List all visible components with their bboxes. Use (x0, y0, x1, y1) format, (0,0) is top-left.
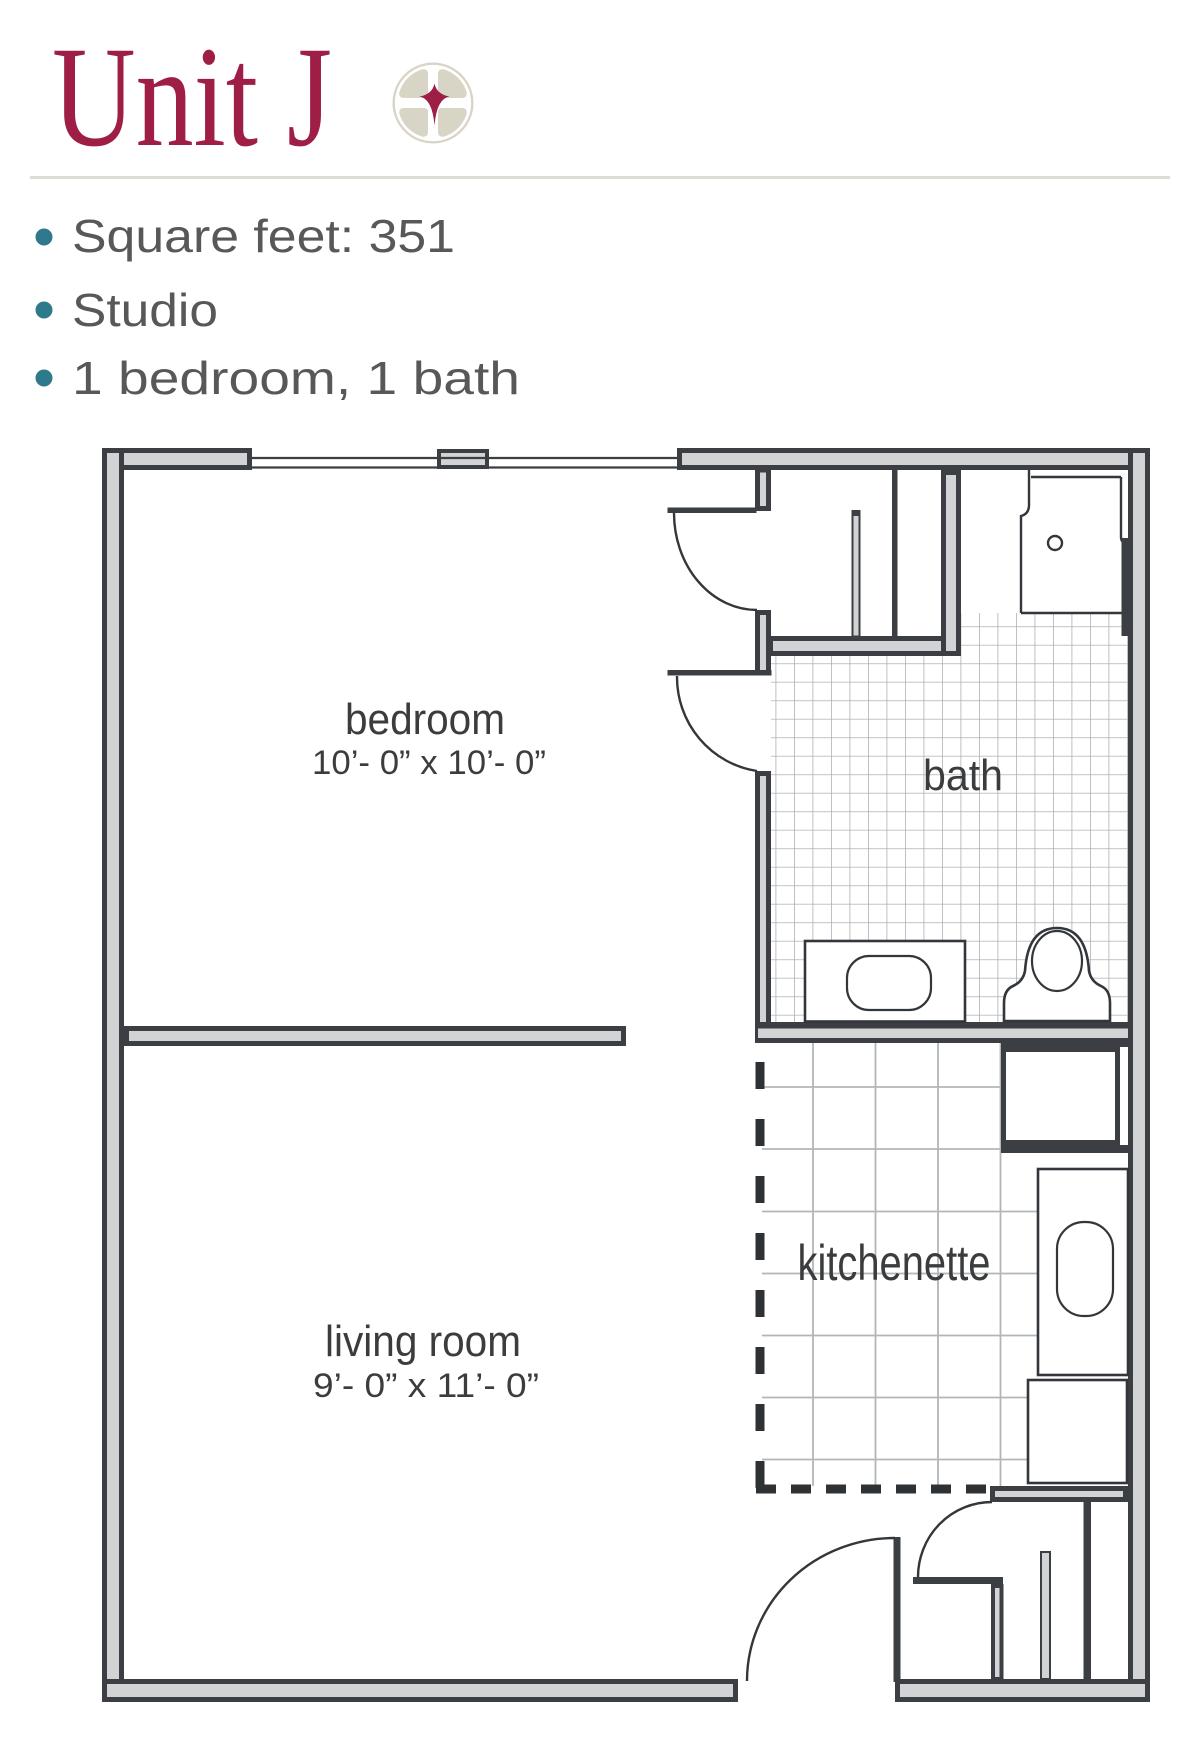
svg-text:10’- 0” x 10’- 0”: 10’- 0” x 10’- 0” (312, 744, 546, 782)
svg-text:living room: living room (325, 1317, 521, 1366)
svg-text:1 bedroom, 1 bath: 1 bedroom, 1 bath (72, 352, 520, 404)
svg-text:bath: bath (923, 751, 1003, 800)
svg-text:kitchenette: kitchenette (798, 1235, 991, 1291)
svg-text:Unit J: Unit J (52, 18, 332, 177)
svg-text:Studio: Studio (72, 284, 218, 336)
svg-text:bedroom: bedroom (345, 695, 505, 744)
svg-text:9’- 0” x 11’- 0”: 9’- 0” x 11’- 0” (313, 1367, 539, 1405)
svg-text:Square feet: 351: Square feet: 351 (72, 210, 455, 262)
